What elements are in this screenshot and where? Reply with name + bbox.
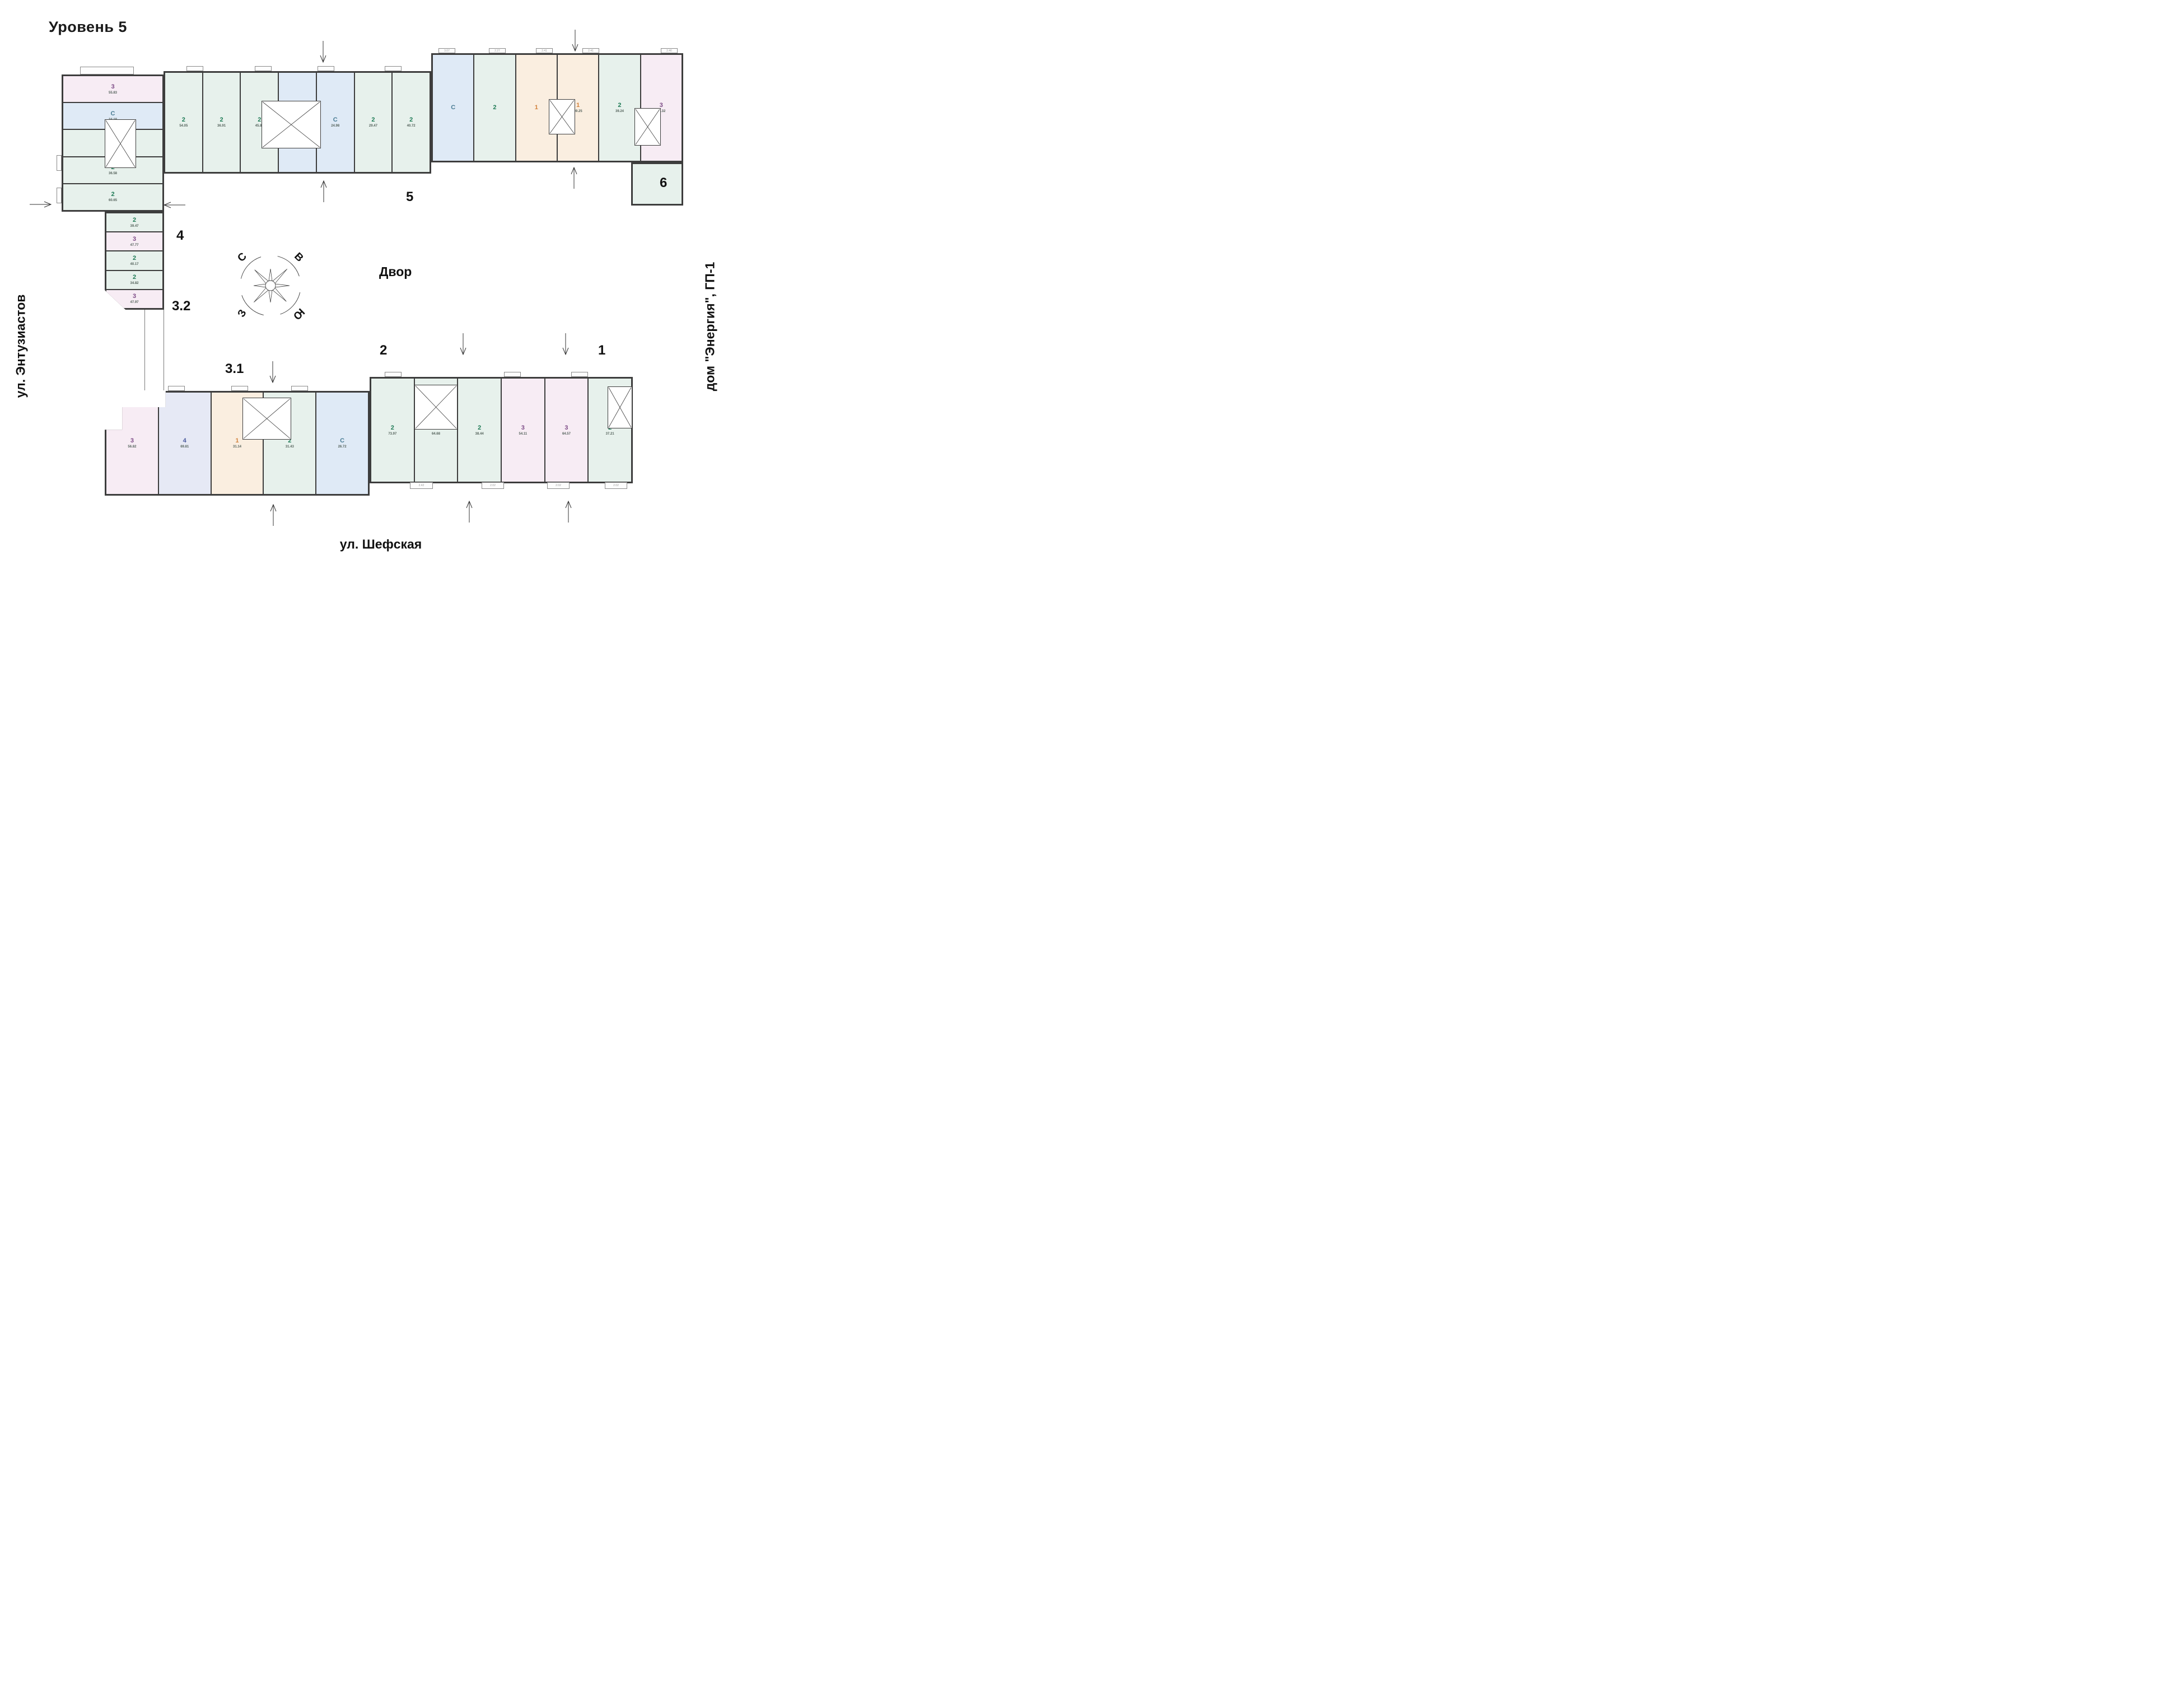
building-3-2: 239.47347.77240.17234.82347.97 bbox=[105, 212, 164, 310]
apartment-unit-label: 364.57 bbox=[545, 379, 588, 482]
apartment-unit-label: 354.11 bbox=[502, 379, 544, 482]
unit-type-label: С bbox=[111, 111, 115, 117]
apartment-unit: 240.72 bbox=[393, 73, 430, 172]
apartment-unit: 356.82 bbox=[106, 393, 158, 494]
apartment-unit: 229.47 bbox=[355, 73, 392, 172]
elevator-x-icon bbox=[243, 398, 292, 440]
balcony-tab: 2.02 bbox=[547, 482, 570, 489]
apartment-unit: 238.44 bbox=[458, 379, 501, 482]
apartment-unit: 354.11 bbox=[502, 379, 544, 482]
entrance-arrow bbox=[320, 180, 327, 203]
apartment-unit-label: 347.77 bbox=[106, 232, 162, 250]
unit-area-label: 40.17 bbox=[130, 263, 138, 266]
unit-type-label: 2 bbox=[391, 425, 394, 431]
balcony-area-label: 2.40 bbox=[666, 49, 672, 53]
elevator-x-icon bbox=[415, 385, 458, 430]
courtyard-label: Двор bbox=[379, 264, 412, 279]
unit-area-label: 39.24 bbox=[615, 110, 624, 113]
balcony-tab: 2.42 bbox=[410, 482, 433, 489]
unit-type-label: 2 bbox=[478, 425, 481, 431]
balcony-tab bbox=[385, 372, 402, 377]
balcony-area-label: 2.27 bbox=[494, 49, 500, 53]
unit-type-label: 1 bbox=[235, 438, 239, 444]
apartment-unit-label: 347.97 bbox=[106, 290, 162, 308]
entrance-arrow bbox=[565, 501, 572, 523]
unit-area-label: 38.44 bbox=[475, 432, 484, 436]
stair-elevator-core bbox=[549, 99, 575, 134]
stair-elevator-core bbox=[105, 119, 136, 168]
stair-elevator-core bbox=[242, 398, 291, 440]
apartment-unit-label: 356.82 bbox=[106, 393, 158, 494]
unit-type-label: 3 bbox=[111, 84, 114, 90]
apartment-unit-label: 234.82 bbox=[106, 271, 162, 289]
apartment-unit-label: 239.24 bbox=[599, 55, 640, 161]
unit-area-label: 36.91 bbox=[217, 124, 226, 128]
apartment-unit: 240.17 bbox=[106, 251, 162, 269]
section-label-1: 1 bbox=[598, 343, 605, 358]
building-1-2: 273.97264.68238.44354.11364.57237.21 bbox=[370, 377, 633, 483]
balcony-area-label: 2.41 bbox=[542, 49, 547, 53]
unit-type-label: 2 bbox=[220, 117, 223, 123]
apartment-unit: 236.91 bbox=[203, 73, 240, 172]
apartment-unit-label: С bbox=[433, 55, 473, 161]
unit-area-label: 64.68 bbox=[432, 432, 440, 436]
balcony-tab bbox=[80, 67, 134, 74]
unit-area-label: 60.65 bbox=[109, 199, 117, 202]
balcony-tab bbox=[504, 372, 521, 377]
apartment-unit-label: 229.47 bbox=[355, 73, 392, 172]
balcony-tab bbox=[231, 386, 248, 391]
unit-type-label: 3 bbox=[521, 425, 525, 431]
balcony-area-label: 2.02 bbox=[490, 484, 496, 487]
unit-type-label: 2 bbox=[133, 217, 136, 223]
balcony-area-label: 3.07 bbox=[444, 49, 450, 53]
unit-type-label: С bbox=[340, 438, 344, 444]
unit-area-label: 37.21 bbox=[606, 432, 614, 436]
unit-area-label: 31.43 bbox=[286, 445, 294, 449]
unit-area-label: 47.77 bbox=[130, 244, 138, 247]
unit-type-label: С bbox=[333, 117, 338, 123]
balcony-tab bbox=[186, 66, 203, 71]
unit-type-label: 3 bbox=[564, 425, 568, 431]
balcony-tab: 2.41 bbox=[536, 48, 553, 53]
apartment-unit: С bbox=[433, 55, 473, 161]
unit-type-label: 1 bbox=[576, 102, 580, 109]
unit-type-label: 2 bbox=[258, 117, 261, 123]
apartment-unit: 239.47 bbox=[106, 213, 162, 231]
unit-area-label: 54.11 bbox=[519, 432, 527, 436]
apartment-unit: 239.24 bbox=[599, 55, 640, 161]
balcony-tab bbox=[571, 372, 588, 377]
apartment-unit: 469.81 bbox=[159, 393, 211, 494]
apartment-unit: 273.97 bbox=[371, 379, 414, 482]
balcony-tab bbox=[291, 386, 308, 391]
unit-area-label: 29.47 bbox=[369, 124, 377, 128]
unit-area-label: 34.82 bbox=[130, 282, 138, 285]
apartment-unit-label: 260.65 bbox=[63, 184, 162, 210]
balcony-tab bbox=[385, 66, 402, 71]
entrance-arrow bbox=[571, 167, 577, 189]
unit-area-label: 40.72 bbox=[407, 124, 416, 128]
elevator-x-icon bbox=[549, 100, 576, 135]
apartment-unit-label: С26.72 bbox=[316, 393, 368, 494]
apartment-unit-label: 469.81 bbox=[159, 393, 211, 494]
elevator-x-icon bbox=[608, 387, 633, 429]
balcony-tab bbox=[318, 66, 334, 71]
building-6-annex bbox=[631, 162, 683, 206]
compass-rose: С В З Ю bbox=[237, 252, 304, 319]
building-3-1: 356.82469.81131.14231.43С26.72 bbox=[105, 391, 370, 496]
floor-plan-canvas: Уровень 5 Двор ул. Энтузиастов дом "Энер… bbox=[0, 0, 728, 565]
unit-area-label: 55.83 bbox=[109, 91, 117, 95]
apartment-unit-label: 254.05 bbox=[165, 73, 202, 172]
apartment-unit-label: 240.72 bbox=[393, 73, 430, 172]
apartment-unit: 260.65 bbox=[63, 184, 162, 210]
balcony-tab: 2.41 bbox=[582, 48, 599, 53]
stair-elevator-core bbox=[262, 101, 321, 148]
entrance-arrow bbox=[164, 202, 186, 208]
balcony-area-label: 2.02 bbox=[613, 484, 619, 487]
apartment-unit-label: С24.98 bbox=[317, 73, 354, 172]
unit-area-label: 64.57 bbox=[562, 432, 571, 436]
balcony-area-label: 2.02 bbox=[556, 484, 561, 487]
unit-area-label: 31.14 bbox=[233, 445, 241, 449]
unit-type-label: 2 bbox=[133, 255, 136, 262]
apartment-unit: 355.83 bbox=[63, 76, 162, 102]
balcony-tab bbox=[255, 66, 272, 71]
balcony-tab: 3.07 bbox=[438, 48, 455, 53]
apartment-unit-label: 240.17 bbox=[106, 251, 162, 269]
boundary-line bbox=[164, 310, 164, 390]
unit-type-label: 2 bbox=[371, 117, 375, 123]
unit-area-label: 69.81 bbox=[180, 445, 189, 449]
elevator-x-icon bbox=[262, 101, 321, 149]
apartment-unit-label: 2 bbox=[474, 55, 515, 161]
balcony-tab: 2.02 bbox=[482, 482, 504, 489]
unit-area-label: 73.97 bbox=[388, 432, 396, 436]
unit-type-label: 2 bbox=[182, 117, 185, 123]
stair-elevator-core bbox=[634, 108, 661, 146]
balcony-tab: 2.40 bbox=[661, 48, 678, 53]
entrance-arrow bbox=[270, 504, 277, 526]
stair-elevator-core bbox=[608, 386, 632, 428]
street-label-right: дом "Энергия", ГП-1 bbox=[703, 262, 718, 391]
apartment-unit-label: 236.91 bbox=[203, 73, 240, 172]
elevator-x-icon bbox=[105, 120, 137, 169]
section-label-3-1: 3.1 bbox=[225, 361, 244, 377]
unit-type-label: С bbox=[451, 105, 455, 111]
apartment-unit: 364.57 bbox=[545, 379, 588, 482]
unit-type-label: 2 bbox=[133, 274, 136, 281]
unit-type-label: 1 bbox=[535, 105, 538, 111]
unit-area-label: 56.82 bbox=[128, 445, 136, 449]
apartment-unit-label: 355.83 bbox=[63, 76, 162, 102]
entrance-arrow bbox=[562, 333, 569, 355]
apartment-unit bbox=[633, 164, 682, 204]
unit-type-label: 2 bbox=[493, 105, 496, 111]
unit-area-label: 39.47 bbox=[130, 225, 138, 228]
balcony-area-label: 2.42 bbox=[419, 484, 424, 487]
apartment-unit: 254.05 bbox=[165, 73, 202, 172]
section-label-6: 6 bbox=[660, 175, 667, 191]
balcony-tab: 2.27 bbox=[489, 48, 506, 53]
apartment-unit: 234.82 bbox=[106, 271, 162, 289]
balcony-tab bbox=[57, 188, 62, 203]
section-label-4: 4 bbox=[176, 228, 184, 244]
unit-area-label: 24.98 bbox=[331, 124, 339, 128]
stair-elevator-core bbox=[414, 385, 458, 430]
apartment-unit-label: 238.44 bbox=[458, 379, 501, 482]
apartment-unit: 347.77 bbox=[106, 232, 162, 250]
boundary-line bbox=[144, 310, 145, 390]
entrance-arrow bbox=[460, 333, 466, 355]
apartment-unit: 347.97 bbox=[106, 290, 162, 308]
unit-area-label: 36.58 bbox=[109, 172, 117, 175]
unit-type-label: 2 bbox=[111, 192, 114, 198]
balcony-tab bbox=[57, 155, 62, 171]
unit-type-label: 2 bbox=[409, 117, 413, 123]
apartment-unit: С24.98 bbox=[317, 73, 354, 172]
unit-type-label: 2 bbox=[618, 102, 621, 109]
section-label-5: 5 bbox=[406, 189, 413, 205]
unit-type-label: 3 bbox=[133, 293, 136, 300]
section-label-3-2: 3.2 bbox=[172, 299, 190, 314]
unit-type-label: 3 bbox=[130, 438, 134, 444]
page-title: Уровень 5 bbox=[49, 18, 127, 36]
unit-area-label: 26.72 bbox=[338, 445, 347, 449]
apartment-unit: 2 bbox=[474, 55, 515, 161]
unit-type-label: 3 bbox=[133, 236, 136, 242]
unit-area-label: 47.97 bbox=[130, 301, 138, 304]
apartment-unit: С26.72 bbox=[316, 393, 368, 494]
street-label-bottom: ул. Шефская bbox=[340, 537, 422, 552]
unit-type-label: 4 bbox=[183, 438, 186, 444]
balcony-tab: 2.02 bbox=[605, 482, 627, 489]
elevator-x-icon bbox=[635, 109, 661, 146]
entrance-arrow bbox=[29, 201, 52, 208]
section-label-2: 2 bbox=[380, 343, 387, 358]
apartment-unit-label: 273.97 bbox=[371, 379, 414, 482]
unit-area-label: 54.05 bbox=[179, 124, 188, 128]
balcony-area-label: 2.41 bbox=[588, 49, 594, 53]
apartment-unit-label: 239.47 bbox=[106, 213, 162, 231]
entrance-arrow bbox=[320, 40, 326, 63]
balcony-tab bbox=[168, 386, 185, 391]
entrance-arrow bbox=[572, 29, 578, 52]
entrance-arrow bbox=[466, 501, 473, 523]
entrance-arrow bbox=[269, 361, 276, 383]
street-label-left: ул. Энтузиастов bbox=[13, 295, 29, 398]
